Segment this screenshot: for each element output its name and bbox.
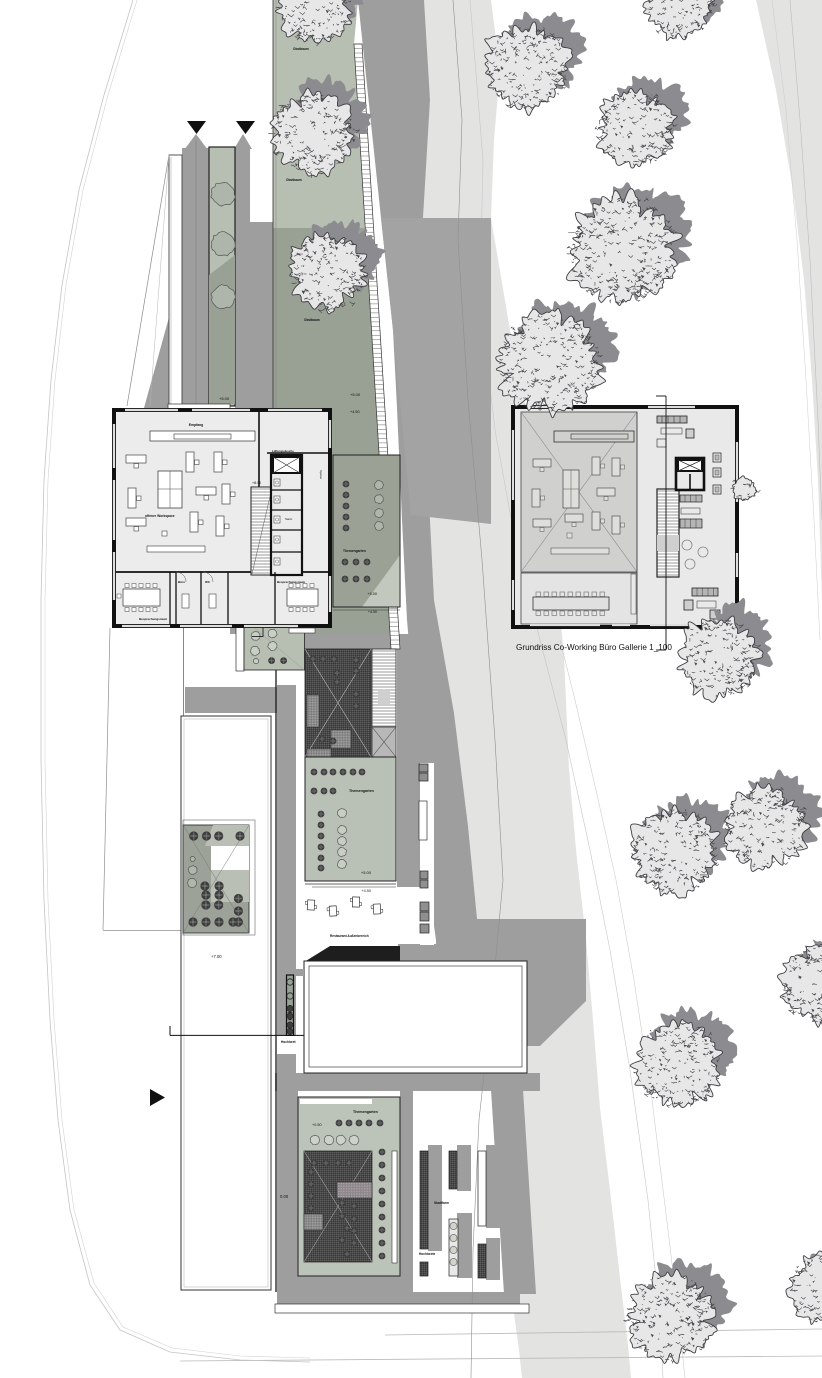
svg-text:Grundriss Co-Working Büro Gall: Grundriss Co-Working Büro Gallerie 1_100 — [516, 643, 672, 652]
svg-text:Hochbeet: Hochbeet — [281, 1040, 296, 1044]
svg-text:+0.50: +0.50 — [312, 1123, 322, 1127]
svg-text:Büro: Büro — [178, 580, 185, 584]
svg-text:Themengarten: Themengarten — [349, 789, 374, 793]
svg-text:+4.50: +4.50 — [368, 610, 377, 614]
svg-text:offener Workspace: offener Workspace — [145, 514, 175, 518]
svg-text:Lüftungsdusche: Lüftungsdusche — [272, 449, 294, 453]
svg-text:Speise: Speise — [319, 470, 323, 480]
svg-text:+5.00: +5.00 — [219, 396, 230, 401]
svg-text:+4.50: +4.50 — [350, 410, 360, 414]
svg-text:Obstbaum: Obstbaum — [293, 47, 309, 51]
svg-text:Obstbaum: Obstbaum — [286, 178, 302, 182]
svg-text:+7.00: +7.00 — [211, 954, 222, 959]
svg-text:Themengarten: Themengarten — [343, 549, 366, 553]
svg-text:Themengarten: Themengarten — [353, 1110, 378, 1114]
svg-text:WC: WC — [205, 580, 211, 584]
svg-text:+5.00: +5.00 — [350, 392, 361, 397]
svg-text:Restaurant Außenbereich: Restaurant Außenbereich — [330, 934, 369, 938]
svg-text:Obstbaum: Obstbaum — [304, 318, 320, 322]
svg-text:+4.50: +4.50 — [361, 889, 371, 893]
svg-text:+8.00: +8.00 — [252, 481, 261, 485]
svg-text:0.00: 0.00 — [280, 1194, 289, 1199]
svg-text:Empfang: Empfang — [189, 423, 204, 427]
svg-text:+5.00: +5.00 — [361, 870, 372, 875]
svg-text:Hochbeete: Hochbeete — [419, 1252, 436, 1256]
svg-text:Besprechungsraum: Besprechungsraum — [139, 617, 168, 621]
svg-text:+5.00: +5.00 — [367, 592, 377, 596]
svg-text:Besprechungsraum: Besprechungsraum — [277, 580, 306, 584]
svg-text:Stadtfarm: Stadtfarm — [434, 1201, 449, 1205]
svg-text:Sanit.: Sanit. — [285, 517, 293, 521]
